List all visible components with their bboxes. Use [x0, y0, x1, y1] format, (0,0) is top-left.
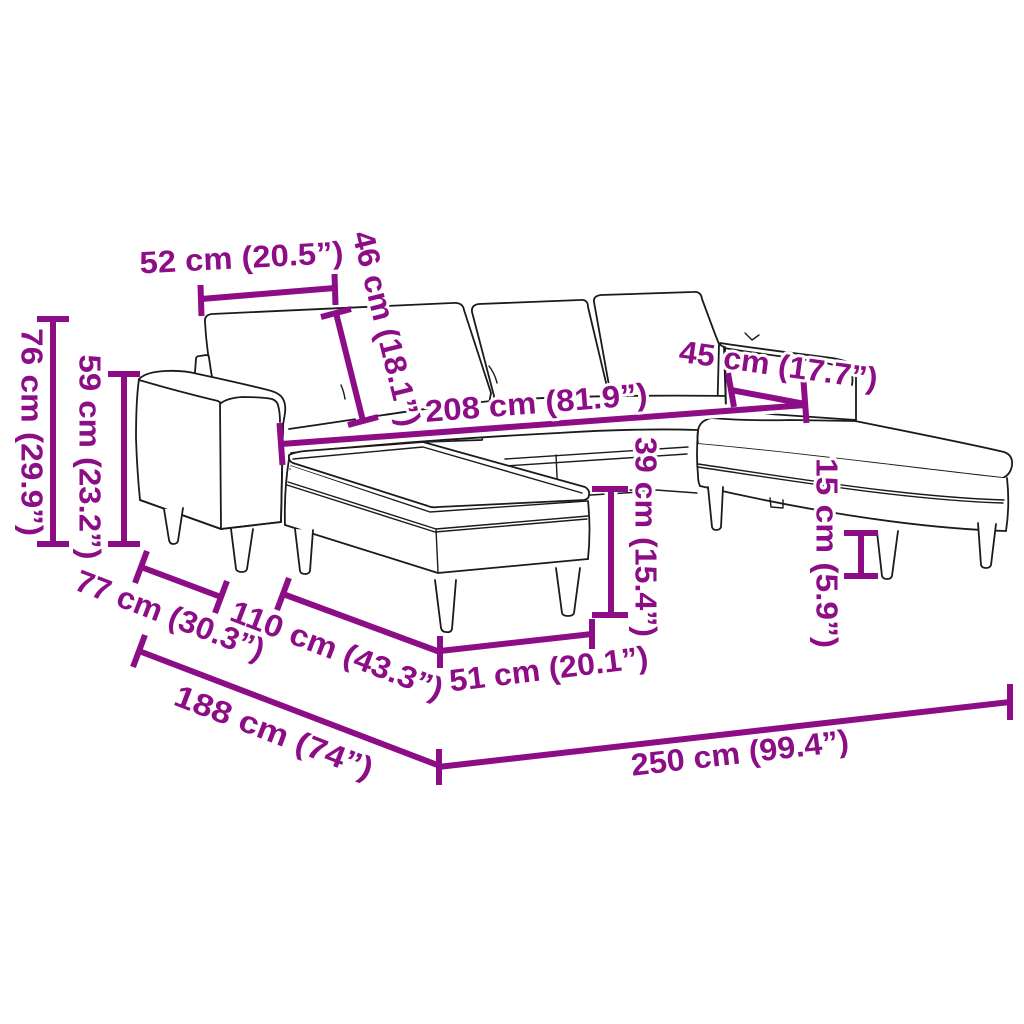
svg-text:76 cm (29.9”): 76 cm (29.9”) — [15, 328, 50, 536]
svg-text:39 cm (15.4”): 39 cm (15.4”) — [629, 437, 664, 637]
svg-text:15 cm (5.9”): 15 cm (5.9”) — [810, 458, 845, 648]
svg-text:59 cm (23.2”): 59 cm (23.2”) — [73, 355, 108, 560]
